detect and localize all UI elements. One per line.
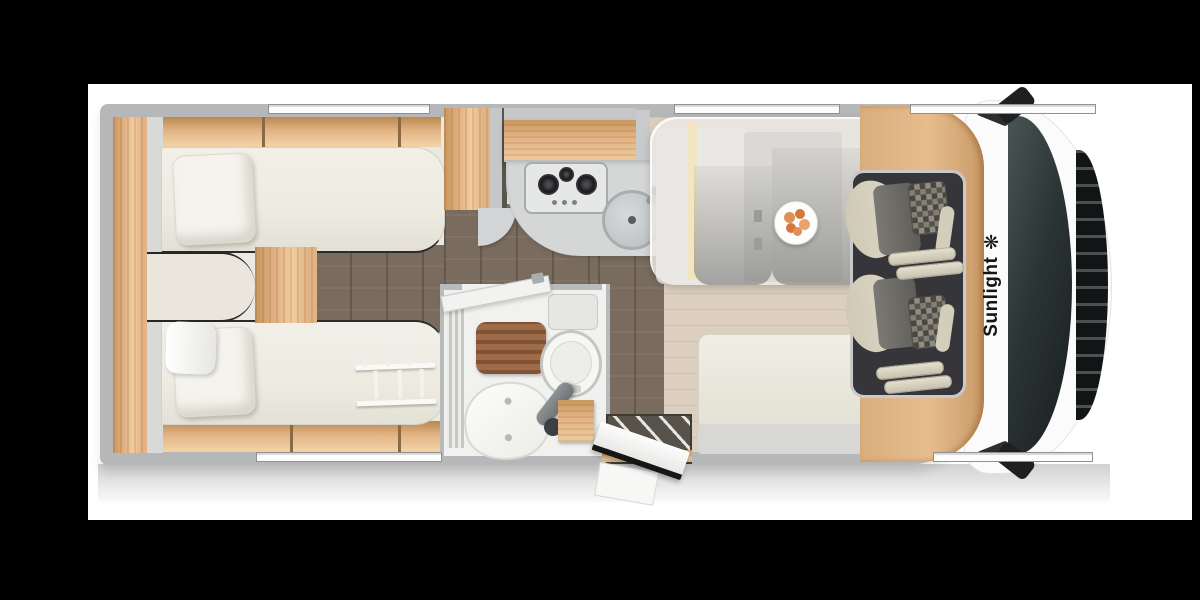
- side-bench-front: [698, 424, 866, 454]
- basin-drain: [504, 434, 512, 442]
- hob-knob: [562, 200, 567, 205]
- bedside-roll: [165, 321, 217, 375]
- hob-burner: [576, 174, 597, 195]
- bathroom-wall-stub-right: [544, 284, 602, 290]
- basin-drain: [504, 397, 512, 405]
- shelf-divider: [262, 117, 265, 147]
- center-bed-cushion: [147, 252, 255, 322]
- dinner-plate: [774, 201, 818, 245]
- plate-food: [784, 212, 795, 223]
- gas-hob: [524, 162, 608, 214]
- plate-food: [793, 227, 802, 236]
- drying-rack: [354, 337, 437, 434]
- dropdown-bed-overlay: [650, 117, 868, 285]
- hob-burner: [538, 174, 559, 195]
- toilet-lid: [550, 341, 592, 385]
- rack-prong: [373, 371, 378, 399]
- rack-rail: [357, 399, 437, 407]
- brand-logo: Sunlight ❋: [929, 255, 1055, 315]
- dropdown-bed-latch: [754, 238, 762, 250]
- flower-icon: ❋: [981, 233, 1004, 249]
- hob-knob: [572, 200, 577, 205]
- plate-food: [795, 209, 805, 219]
- hob-knob: [552, 200, 557, 205]
- rack-prong: [397, 370, 402, 398]
- bathroom-wall-stub-left: [440, 284, 462, 290]
- window-top-dinette: [674, 104, 840, 114]
- tall-wardrobe: [444, 108, 490, 210]
- shelf-divider: [290, 421, 293, 452]
- sink-drain: [628, 216, 636, 224]
- window-top-cab: [910, 104, 1096, 114]
- rack-prong: [406, 337, 411, 365]
- bed-step-podium: [255, 247, 317, 323]
- overhead-locker: [504, 120, 636, 162]
- brand-name: Sunlight: [981, 257, 1003, 337]
- toilet-cistern: [548, 294, 598, 330]
- shower-tambour-door: [446, 296, 464, 448]
- bathroom-door-handle: [531, 272, 545, 284]
- overhead-shelf-top: [163, 117, 441, 147]
- wardrobe-side-panel: [490, 108, 502, 212]
- window-bottom-cab: [933, 452, 1093, 462]
- rack-prong: [384, 340, 389, 366]
- dropdown-bed-mattress-1: [694, 166, 772, 285]
- hob-burner: [559, 167, 574, 182]
- shelf-divider: [398, 117, 401, 147]
- window-top-rear: [268, 104, 430, 114]
- shower-mat: [476, 322, 546, 374]
- side-bench-seat: [698, 334, 868, 430]
- rear-headboard-panel: [113, 117, 147, 453]
- rack-prong: [362, 339, 367, 367]
- dropdown-bed-latch: [754, 210, 762, 222]
- canvas-background: Sunlight ❋: [0, 0, 1200, 600]
- bathroom-cabinet: [558, 400, 594, 442]
- rack-prong: [419, 369, 424, 397]
- overhead-locker-top: [504, 108, 636, 120]
- pillow-top-bed: [172, 152, 257, 246]
- window-bottom-rear: [256, 452, 442, 462]
